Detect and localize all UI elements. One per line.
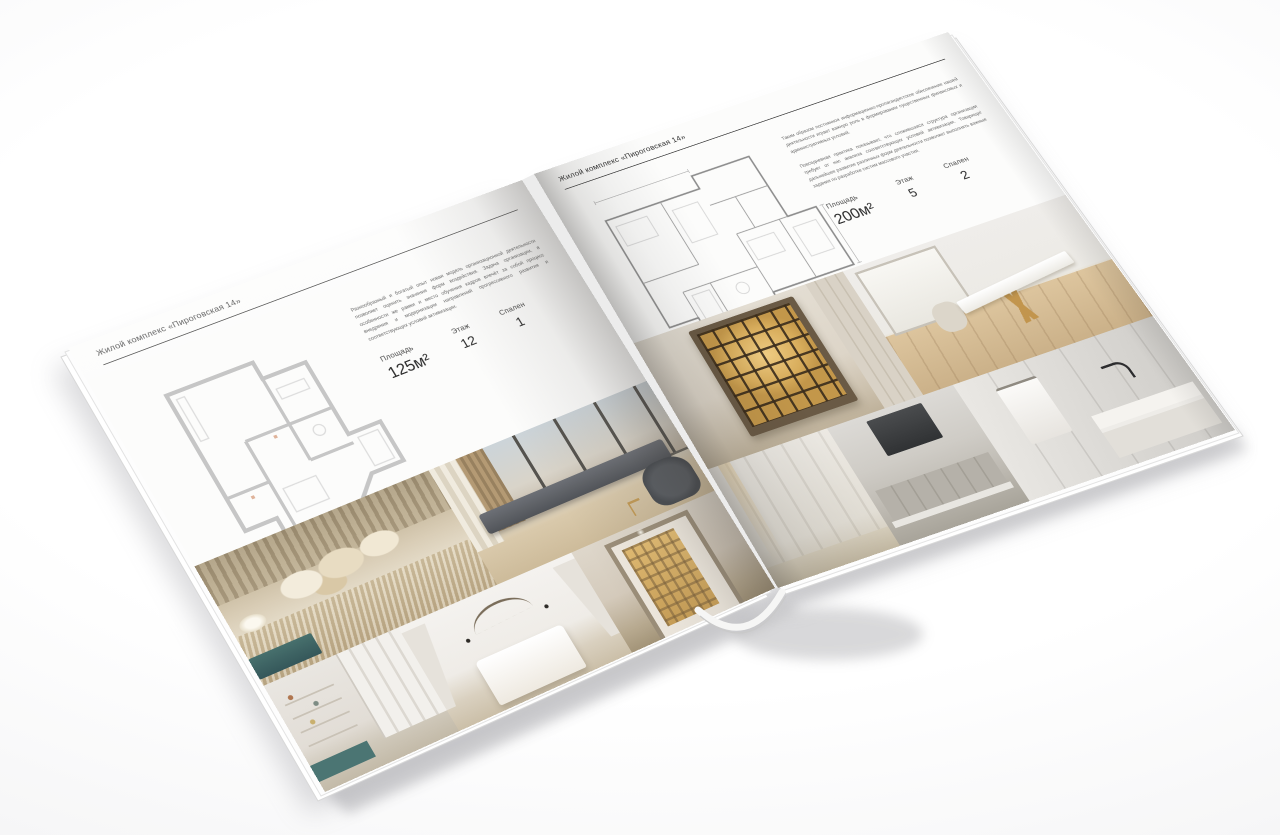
bedrooms-value: 2 [957,168,973,183]
branch-decor [465,589,534,636]
stat-bedrooms: Спален 1 [497,300,536,334]
stat-bedrooms: Спален 2 [942,155,982,186]
bed [474,624,586,706]
bedrooms-label: Спален [497,300,526,317]
page-header: Жилой комплекс «Пироговская 14» [94,296,242,358]
gold-side-table [627,498,647,516]
bedrooms-label: Спален [942,155,971,170]
wall-sconces [465,638,471,643]
bedrooms-value: 1 [513,314,528,330]
floor-value: 12 [458,333,480,352]
floor-value: 5 [905,186,921,201]
stat-floor: Этаж 5 [894,174,926,202]
brochure-mockup-scene: Жилой комплекс «Пироговская 14» [0,0,1280,835]
stat-area: Площадь 125м² [379,341,435,383]
stat-floor: Этаж 12 [450,322,482,353]
spine-curl-shadow [733,608,923,660]
range-hood [866,403,944,457]
wall-shelves [278,671,362,754]
